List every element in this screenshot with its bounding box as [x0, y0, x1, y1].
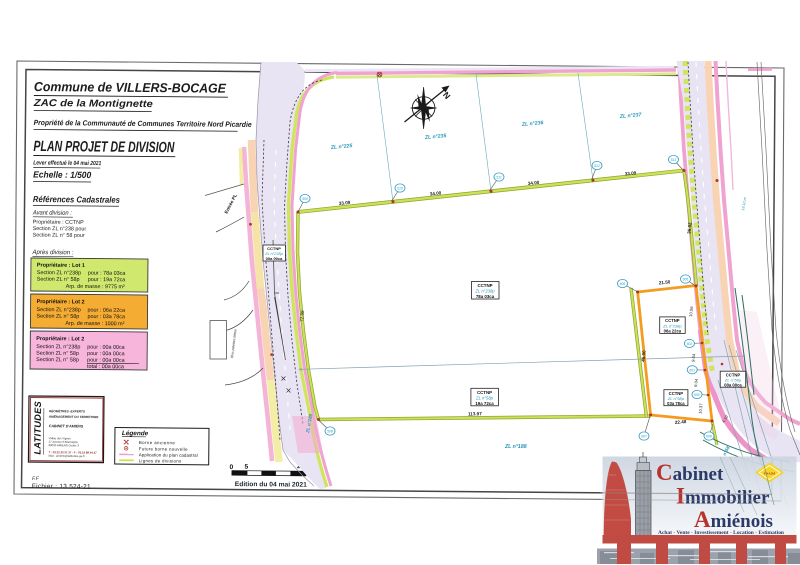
svg-text:509: 509 — [302, 197, 308, 201]
svg-text:Future borne nouvelle: Future borne nouvelle — [139, 446, 188, 451]
svg-text:CABINET D'AMIENS: CABINET D'AMIENS — [49, 424, 84, 428]
svg-text:Immobilier: Immobilier — [676, 484, 770, 509]
svg-text:Bloc palettes Béton: Bloc palettes Béton — [230, 329, 238, 359]
svg-text:Propriétaire : Lot 2: Propriétaire : Lot 2 — [36, 336, 84, 342]
svg-text:513: 513 — [671, 158, 677, 162]
svg-text:Fichier : 13.524-21: Fichier : 13.524-21 — [32, 483, 91, 491]
svg-text:10.37: 10.37 — [698, 402, 704, 414]
svg-text:0: 0 — [229, 464, 233, 471]
svg-text:Lever effectué le 04 mai 2021: Lever effectué le 04 mai 2021 — [33, 160, 102, 167]
svg-text:22.48: 22.48 — [675, 419, 687, 425]
svg-text:03a 78ca: 03a 78ca — [667, 401, 685, 406]
svg-text:AMÉNAGEMENT DU TERRITOIRE: AMÉNAGEMENT DU TERRITOIRE — [48, 414, 99, 419]
svg-text:Echelle : 1/500: Echelle : 1/500 — [33, 169, 91, 180]
svg-text:Cabinet: Cabinet — [656, 460, 724, 485]
svg-text:06a 22ca: 06a 22ca — [664, 329, 682, 334]
svg-text:ZL n°225: ZL n°225 — [330, 143, 353, 151]
svg-text:ZL n°236: ZL n°236 — [521, 120, 544, 128]
svg-text:pour : 00a 00ca: pour : 00a 00ca — [87, 344, 125, 350]
svg-text:Références Cadastrales: Références Cadastrales — [33, 194, 120, 205]
svg-text:ZL n°238p: ZL n°238p — [474, 289, 495, 294]
svg-text:9.04: 9.04 — [691, 353, 697, 362]
svg-text:pour : 03a 78ca: pour : 03a 78ca — [87, 314, 125, 320]
svg-text:ZL n°235: ZL n°235 — [424, 133, 447, 141]
svg-text:Propriétaire : CCTNP: Propriétaire : CCTNP — [33, 219, 84, 225]
svg-text:Section ZL n°238p: Section ZL n°238p — [36, 344, 80, 350]
svg-text:pour : 06a 22ca: pour : 06a 22ca — [88, 307, 126, 313]
svg-text:Section ZL n° 58p: Section ZL n° 58p — [37, 277, 80, 283]
svg-text:CCTNP: CCTNP — [477, 283, 492, 288]
svg-text:ZL n°188: ZL n°188 — [504, 444, 527, 450]
svg-text:pour : 00a 00ca: pour : 00a 00ca — [87, 351, 125, 357]
svg-text:10.06: 10.06 — [688, 305, 694, 317]
svg-text:ZL n°237: ZL n°237 — [619, 112, 643, 120]
svg-text:Application du plan cadastr: Application du plan cadastral — [139, 452, 198, 458]
svg-text:F.F: F.F — [32, 476, 40, 482]
svg-text:Section ZL n° 58 pour: Section ZL n° 58 pour — [33, 232, 85, 238]
svg-text:Section ZL n°238p: Section ZL n°238p — [37, 270, 81, 276]
svg-text:ZAC de la Montignette: ZAC de la Montignette — [33, 98, 154, 110]
svg-text:pour : 00a 00ca: pour : 00a 00ca — [87, 357, 125, 363]
svg-text:113.97: 113.97 — [468, 411, 482, 416]
svg-text:601: 601 — [689, 368, 695, 372]
svg-text:GÉOMÈTRES -EXPERTS: GÉOMÈTRES -EXPERTS — [49, 408, 86, 413]
svg-text:9.04: 9.04 — [693, 378, 699, 387]
svg-text:total : 00a 00ca: total : 00a 00ca — [87, 364, 124, 370]
svg-text:608: 608 — [706, 435, 712, 439]
svg-text:Avant division :: Avant division : — [32, 209, 72, 216]
svg-text:5: 5 — [244, 464, 248, 471]
svg-text:Mail : amiens@latitudes-ge.fr: Mail : amiens@latitudes-ge.fr — [48, 454, 84, 458]
svg-text:Amiénois: Amiénois — [694, 507, 773, 532]
svg-text:Légende: Légende — [122, 430, 149, 437]
svg-text:80090 AMIENS Cedex 3: 80090 AMIENS Cedex 3 — [49, 443, 80, 447]
svg-text:607: 607 — [641, 435, 647, 439]
svg-text:512: 512 — [594, 164, 600, 168]
svg-text:508: 508 — [327, 430, 333, 434]
svg-text:pour : 78a 03ca: pour : 78a 03ca — [88, 270, 126, 276]
svg-text:78a 03ca: 78a 03ca — [476, 294, 495, 299]
svg-text:PLAN PROJET DE DIVISION: PLAN PROJET DE DIVISION — [33, 138, 175, 156]
svg-text:Section ZL n° 58p: Section ZL n° 58p — [36, 357, 79, 363]
svg-text:CCTNP: CCTNP — [267, 246, 281, 251]
svg-text:Propriétaire : Lot 2: Propriétaire : Lot 2 — [37, 299, 85, 305]
svg-text:Propriété de la Communauté de: Propriété de la Communauté de Communes T… — [34, 118, 252, 129]
svg-text:Après division :: Après division : — [32, 249, 74, 256]
svg-text:00a 00ca: 00a 00ca — [266, 256, 283, 261]
svg-text:Section ZL n° 58p: Section ZL n° 58p — [36, 314, 79, 320]
svg-text:Commune de VILLERS-BOCAGE: Commune de VILLERS-BOCAGE — [34, 79, 226, 96]
svg-text:Section ZL n°238 pour: Section ZL n°238 pour — [33, 226, 87, 232]
svg-text:Edition du 04 mai 2021: Edition du 04 mai 2021 — [235, 481, 307, 489]
svg-text:72.88: 72.88 — [299, 310, 305, 322]
svg-text:Arp. de masse : 1000 m²: Arp. de masse : 1000 m² — [65, 321, 124, 328]
svg-text:LATITUDES: LATITUDES — [32, 400, 42, 454]
svg-text:602: 602 — [687, 342, 693, 346]
svg-text:Section ZL n° 58p: Section ZL n° 58p — [36, 351, 79, 357]
svg-text:600: 600 — [694, 393, 700, 397]
svg-text:606: 606 — [620, 282, 626, 286]
svg-text:19.10 m: 19.10 m — [741, 197, 747, 211]
svg-text:605: 605 — [683, 278, 689, 282]
svg-text:Arp. de masse : 9775 m²: Arp. de masse : 9775 m² — [66, 284, 125, 291]
svg-text:510: 510 — [397, 187, 403, 191]
svg-text:Section ZL n°238p: Section ZL n°238p — [37, 307, 81, 313]
svg-text:ZL n°58p: ZL n°58p — [475, 395, 494, 400]
svg-text:CCTNP: CCTNP — [477, 390, 492, 395]
svg-text:00a 00ca: 00a 00ca — [724, 383, 742, 388]
svg-text:21.50: 21.50 — [659, 279, 671, 285]
svg-text:Propriétaire : Lot 1: Propriétaire : Lot 1 — [37, 263, 85, 269]
svg-text:Entrée PL: Entrée PL — [223, 193, 238, 214]
svg-text:511: 511 — [496, 176, 502, 180]
svg-text:Borne ancienne: Borne ancienne — [139, 440, 176, 445]
svg-text:19a 72ca: 19a 72ca — [475, 401, 494, 406]
svg-text:Lignes de divisions: Lignes de divisions — [139, 458, 182, 463]
svg-text:pour : 19a 72ca: pour : 19a 72ca — [88, 277, 126, 283]
